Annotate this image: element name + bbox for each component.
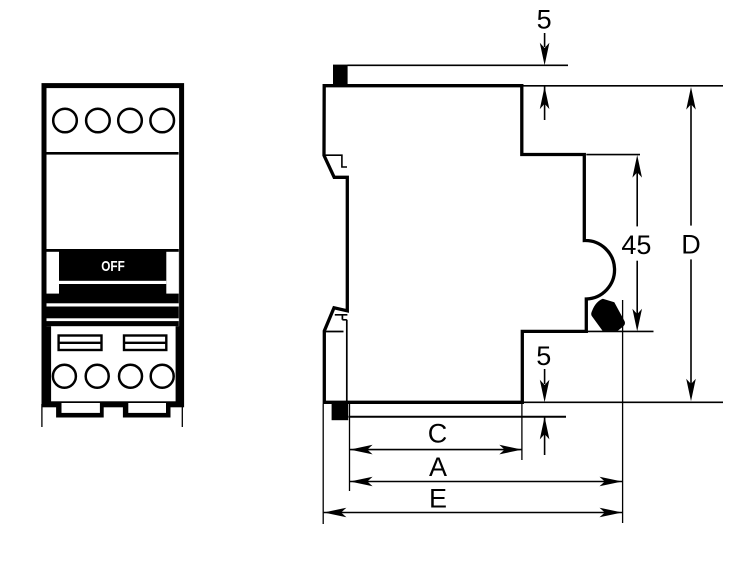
svg-text:OFF: OFF [101,258,125,275]
svg-text:A: A [429,452,447,482]
svg-text:45: 45 [621,230,651,260]
svg-text:E: E [429,484,447,514]
svg-text:C: C [428,419,448,449]
svg-text:5: 5 [537,4,552,34]
svg-text:5: 5 [536,341,551,371]
svg-text:D: D [681,230,701,260]
